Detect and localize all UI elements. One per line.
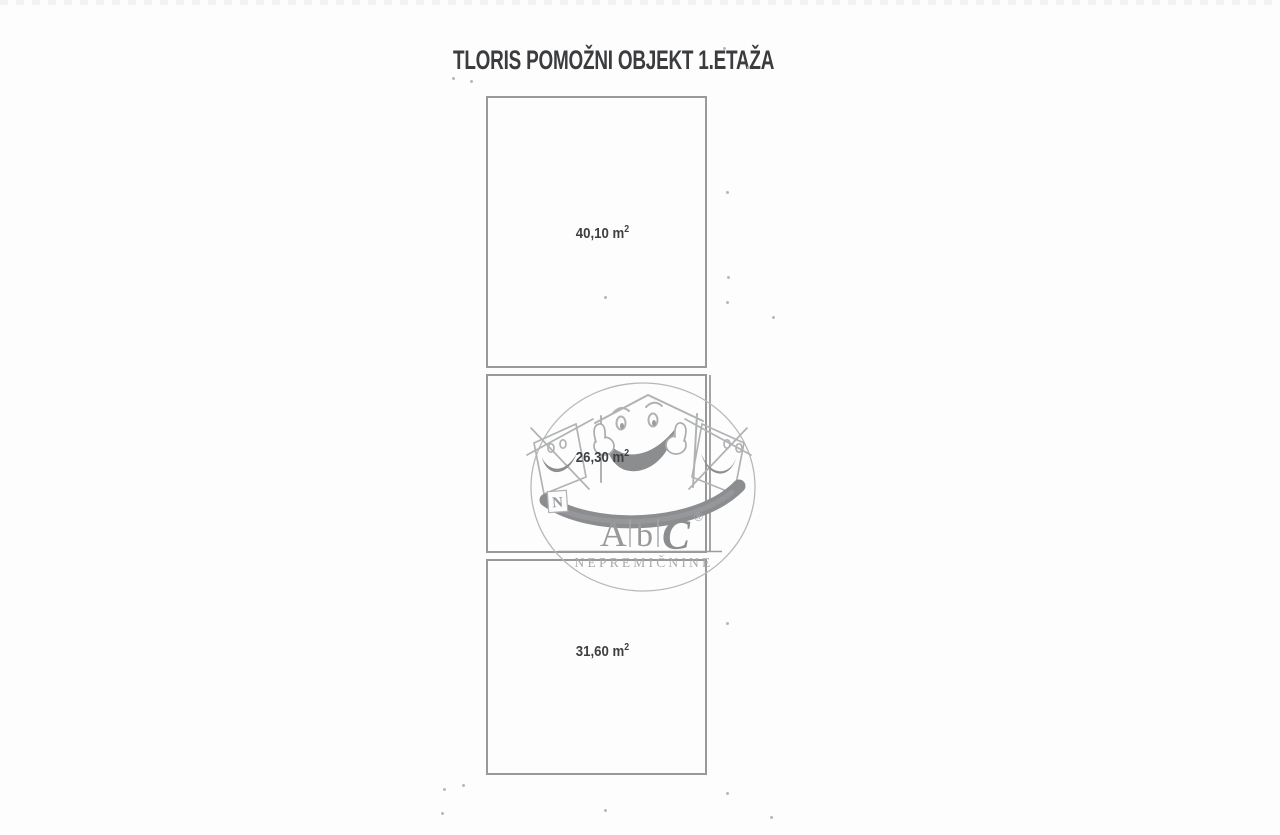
n-badge-letter: N <box>552 495 564 512</box>
scan-speck <box>770 816 773 819</box>
scan-speck <box>726 301 729 304</box>
scan-speck <box>470 80 473 83</box>
scan-speck <box>727 276 730 279</box>
n-badge: N <box>547 490 567 512</box>
smile-icon <box>542 453 577 472</box>
scan-speck <box>726 622 729 625</box>
scan-artifact-strip <box>0 0 1280 5</box>
page-title: TLORIS POMOŽNI OBJEKT 1.ETAŽA <box>453 45 774 76</box>
scan-speck <box>726 191 729 194</box>
eyebrow-icon <box>646 403 662 407</box>
registered-trademark-icon: ® <box>694 510 703 524</box>
scan-speck <box>726 792 729 795</box>
scan-speck <box>441 812 444 815</box>
scan-speck <box>452 77 455 80</box>
scan-speck <box>723 47 726 50</box>
scan-speck <box>443 788 446 791</box>
scan-speck <box>604 809 607 812</box>
floor-plan-page: TLORIS POMOŽNI OBJEKT 1.ETAŽA 40,10 m2 2… <box>0 0 1280 835</box>
scan-speck <box>747 66 750 69</box>
agency-watermark-logo: N A b C ® NEPREMIČNINE <box>520 368 770 600</box>
scan-speck <box>772 316 775 319</box>
brand-subtitle: NEPREMIČNINE <box>575 555 714 570</box>
smile-icon <box>605 429 675 471</box>
brand-letter-b: b <box>636 517 653 554</box>
brand-letter-a: A <box>600 514 627 555</box>
thumbs-up-icon <box>594 424 614 455</box>
watermark-house-left <box>527 419 593 494</box>
room-outline-1 <box>486 96 707 368</box>
thumbs-up-icon <box>666 423 686 454</box>
scan-speck <box>462 784 465 787</box>
